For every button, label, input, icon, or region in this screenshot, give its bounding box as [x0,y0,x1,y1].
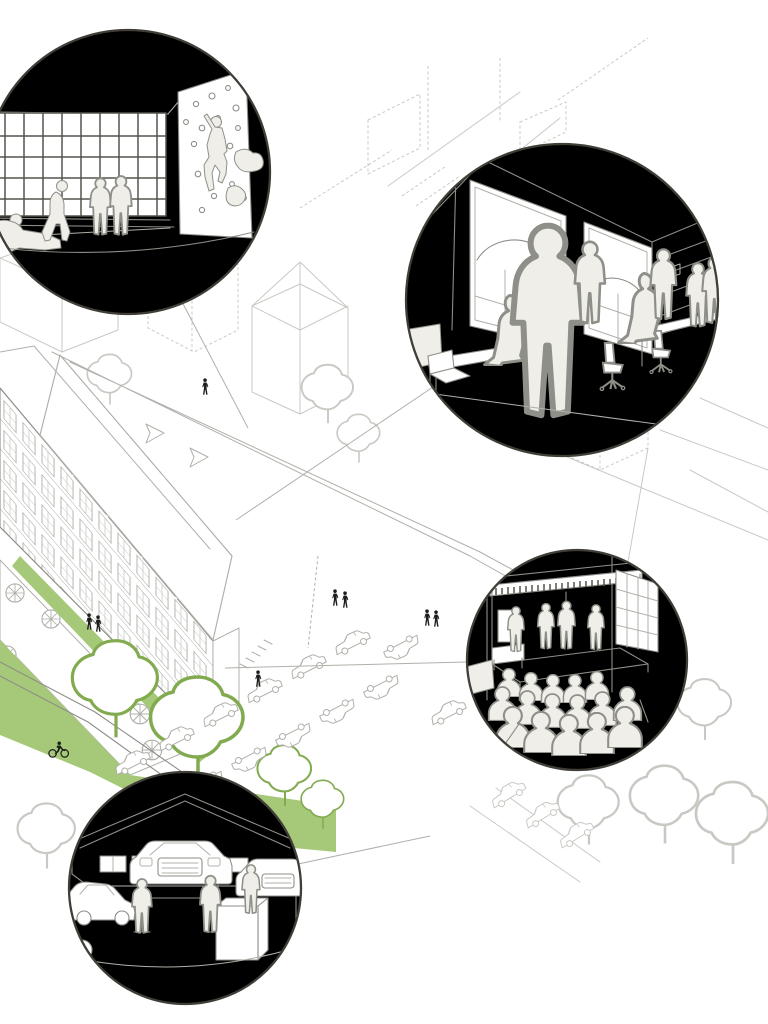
callout-climbing-hall: bouldering-gym vignette [0,30,270,314]
tool-cabinet [216,898,268,960]
illustration-page: Urban block axonometric illustration wit… [0,0,768,1024]
event-window [616,570,658,652]
illustration-canvas: Urban block axonometric illustration wit… [0,0,768,1024]
window-grid [0,113,174,227]
